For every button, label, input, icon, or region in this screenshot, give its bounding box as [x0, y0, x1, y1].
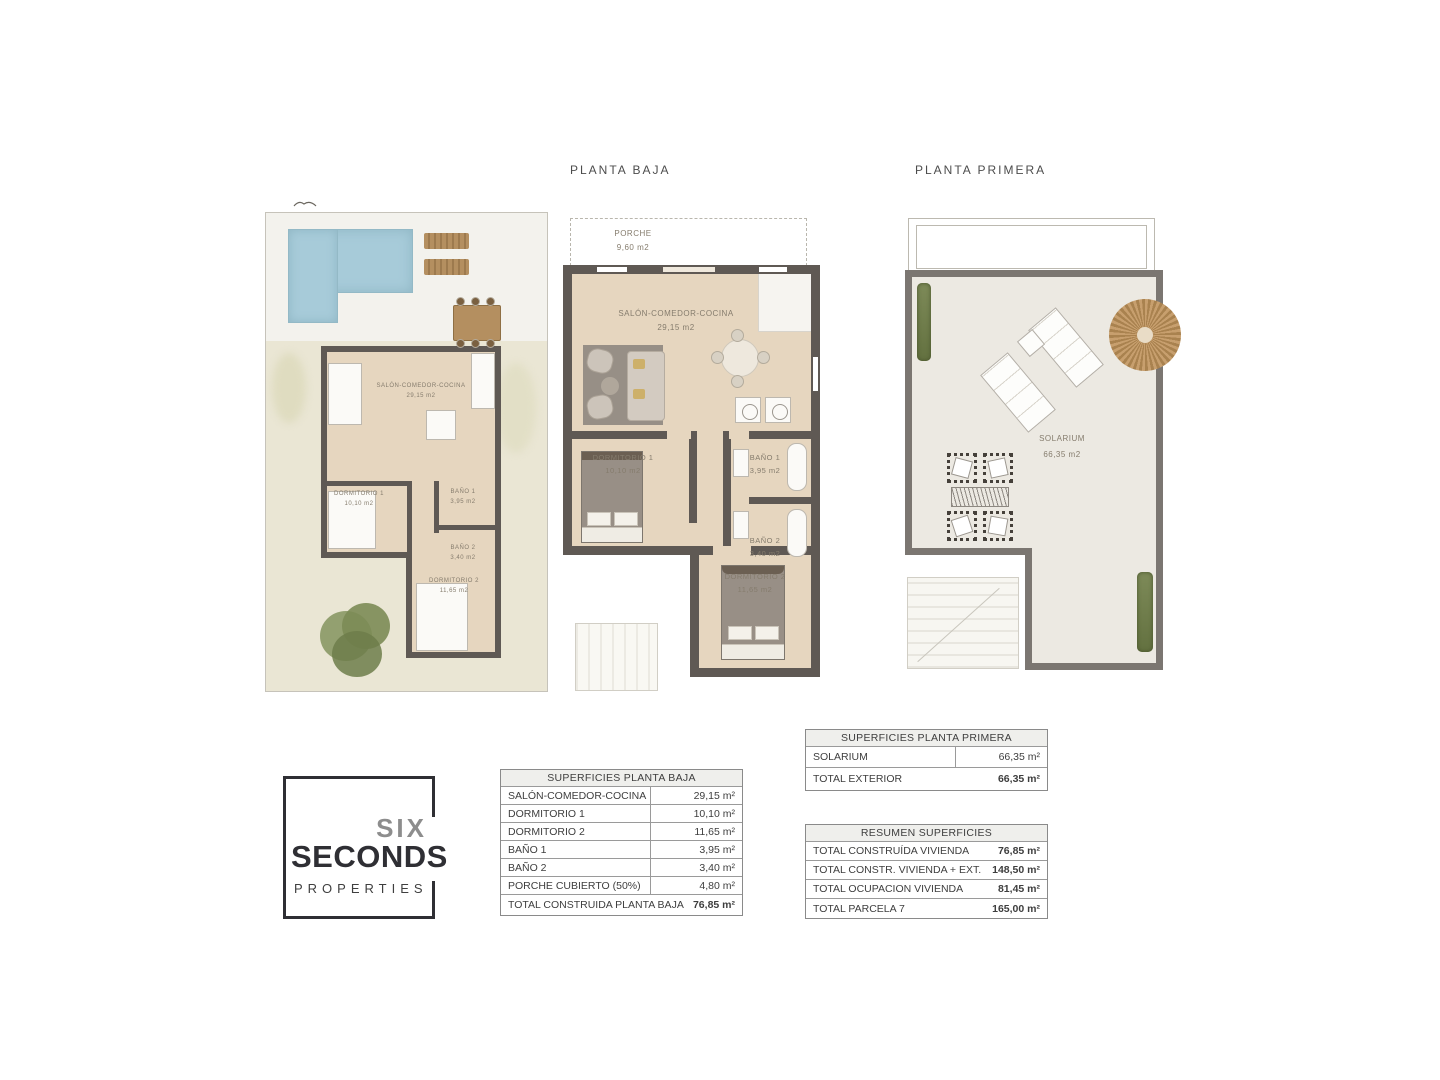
room-name: DORMITORIO 1	[319, 489, 399, 499]
table-superficies-planta-primera: SUPERFICIES PLANTA PRIMERA SOLARIUM66,35…	[805, 729, 1048, 791]
row-value: 29,15 m²	[694, 790, 735, 802]
room-label-porche: PORCHE 9,60 m2	[588, 227, 678, 254]
parasol	[1109, 299, 1181, 371]
room-area: 11,65 m2	[715, 584, 795, 597]
row-value: 3,95 m²	[699, 844, 735, 856]
room-name: DORMITORIO 2	[715, 571, 795, 584]
table-row: TOTAL PARCELA 7165,00 m²	[806, 899, 1047, 918]
table-row: TOTAL CONSTRUÍDA VIVIENDA76,85 m²	[806, 842, 1047, 861]
room-label-bano2: BAÑO 2 3,40 m2	[725, 535, 805, 561]
ground-floor-title: PLANTA BAJA	[570, 163, 670, 177]
room-area: 29,15 m2	[615, 321, 737, 335]
tree	[314, 601, 396, 681]
room-label-dorm2: DORMITORIO 2 11,65 m2	[715, 571, 795, 597]
sofa-cushion	[633, 359, 645, 369]
sun-lounger	[424, 233, 469, 249]
site-room-label-bano2: BAÑO 2 3,40 m2	[428, 543, 498, 563]
planter-hedge-right	[1137, 572, 1153, 652]
stove-hob	[785, 285, 801, 301]
row-value: 3,40 m²	[699, 862, 735, 874]
solarium-chair	[983, 511, 1013, 541]
logo-word-seconds: SECONDS	[291, 839, 448, 875]
outdoor-dining-table	[453, 305, 501, 341]
room-label-salon: SALÓN-COMEDOR-COCINA 29,15 m2	[615, 307, 737, 334]
table-header: SUPERFICIES PLANTA BAJA	[501, 770, 742, 787]
table-total-row: TOTAL EXTERIOR66,35 m²	[806, 768, 1047, 790]
room-name: BAÑO 2	[725, 535, 805, 548]
appliance	[735, 397, 761, 423]
room-name: SOLARIUM	[1012, 431, 1112, 447]
row-value: 11,65 m²	[694, 826, 735, 838]
room-area: 66,35 m2	[1012, 447, 1112, 463]
room-name: PORCHE	[588, 227, 678, 241]
row-label: TOTAL CONSTRUÍDA VIVIENDA	[813, 845, 969, 857]
first-floor-stairs	[907, 577, 1019, 669]
row-label: TOTAL EXTERIOR	[813, 773, 902, 785]
floor-plan-sheet: PLANTA BAJA PLANTA PRIMERA	[0, 0, 1440, 1080]
row-label: DORMITORIO 1	[508, 808, 585, 820]
table-total-row: TOTAL CONSTRUIDA PLANTA BAJA76,85 m²	[501, 895, 742, 915]
table-row: SALÓN-COMEDOR-COCINA29,15 m²	[501, 787, 742, 805]
exterior-stairs	[575, 623, 658, 691]
table-row: DORMITORIO 211,65 m²	[501, 823, 742, 841]
room-area: 11,65 m2	[414, 586, 494, 596]
table-superficies-planta-baja: SUPERFICIES PLANTA BAJA SALÓN-COMEDOR-CO…	[500, 769, 743, 916]
table-row: TOTAL OCUPACION VIVIENDA81,45 m²	[806, 880, 1047, 899]
room-name: BAÑO 2	[428, 543, 498, 553]
table-row: PORCHE CUBIERTO (50%)4,80 m²	[501, 877, 742, 895]
roof-outline-inner	[916, 225, 1147, 269]
row-label: TOTAL CONSTR. VIVIENDA + EXT.	[813, 864, 981, 876]
table-header: RESUMEN SUPERFICIES	[806, 825, 1047, 842]
row-value: 148,50 m²	[992, 864, 1040, 876]
row-label: PORCHE CUBIERTO (50%)	[508, 880, 641, 892]
row-value: 76,85 m²	[998, 845, 1040, 857]
solarium-chair	[983, 453, 1013, 483]
dining-table	[721, 339, 759, 377]
row-label: BAÑO 1	[508, 844, 547, 856]
room-name: DORMITORIO 2	[414, 576, 494, 586]
solarium-chair	[947, 511, 977, 541]
row-label: SALÓN-COMEDOR-COCINA	[508, 790, 646, 802]
row-label: BAÑO 2	[508, 862, 547, 874]
six-seconds-logo: SIX SECONDS PROPERTIES	[283, 776, 435, 919]
table-row: BAÑO 13,95 m²	[501, 841, 742, 859]
room-area: 3,40 m2	[428, 553, 498, 563]
table-row: SOLARIUM66,35 m²	[806, 747, 1047, 768]
row-value: 165,00 m²	[992, 903, 1040, 915]
table-row: TOTAL CONSTR. VIVIENDA + EXT.148,50 m²	[806, 861, 1047, 880]
first-floor-plan: SOLARIUM 66,35 m2	[905, 215, 1170, 693]
room-label-solarium: SOLARIUM 66,35 m2	[1012, 431, 1112, 463]
sun-lounger	[424, 259, 469, 275]
table-row: DORMITORIO 110,10 m²	[501, 805, 742, 823]
row-value: 10,10 m²	[694, 808, 735, 820]
room-area: 3,95 m2	[725, 465, 805, 478]
site-room-label-dorm2: DORMITORIO 2 11,65 m2	[414, 576, 494, 596]
room-area: 3,40 m2	[725, 548, 805, 561]
row-value: 81,45 m²	[998, 883, 1040, 895]
room-name: SALÓN-COMEDOR-COCINA	[615, 307, 737, 321]
room-name: BAÑO 1	[725, 452, 805, 465]
site-room-label-bano1: BAÑO 1 3,95 m2	[428, 487, 498, 507]
room-label-dorm1: DORMITORIO 1 10,10 m2	[583, 452, 663, 478]
table-resumen-superficies: RESUMEN SUPERFICIES TOTAL CONSTRUÍDA VIV…	[805, 824, 1048, 919]
room-area: 3,95 m2	[428, 497, 498, 507]
room-label-bano1: BAÑO 1 3,95 m2	[725, 452, 805, 478]
room-name: DORMITORIO 1	[583, 452, 663, 465]
room-name: SALÓN-COMEDOR-COCINA	[371, 381, 471, 391]
table-row: BAÑO 23,40 m²	[501, 859, 742, 877]
row-label: TOTAL CONSTRUIDA PLANTA BAJA	[508, 899, 684, 911]
solarium-rug	[951, 487, 1009, 507]
coffee-table	[601, 377, 619, 395]
solarium-chair	[947, 453, 977, 483]
logo-word-properties: PROPERTIES	[294, 881, 428, 896]
garden-bush	[496, 363, 536, 453]
room-name: BAÑO 1	[428, 487, 498, 497]
room-area: 29,15 m2	[371, 391, 471, 401]
row-value: 66,35 m²	[999, 751, 1040, 763]
site-room-label-salon: SALÓN-COMEDOR-COCINA 29,15 m2	[371, 381, 471, 401]
ground-floor-plan: PORCHE 9,60 m2	[560, 215, 822, 693]
site-plan: SALÓN-COMEDOR-COCINA 29,15 m2 DORMITORIO…	[265, 212, 548, 692]
kitchen-counter	[758, 274, 811, 332]
first-floor-title: PLANTA PRIMERA	[915, 163, 1046, 177]
row-value: 4,80 m²	[699, 880, 735, 892]
room-area: 10,10 m2	[583, 465, 663, 478]
row-label: TOTAL PARCELA 7	[813, 903, 905, 915]
bird-mark	[293, 199, 317, 208]
sofa-cushion	[633, 389, 645, 399]
row-label: DORMITORIO 2	[508, 826, 585, 838]
planter-hedge-left	[917, 283, 931, 361]
room-area: 9,60 m2	[588, 241, 678, 255]
row-value: 76,85 m²	[693, 899, 735, 911]
garden-bush	[272, 353, 306, 423]
row-label: SOLARIUM	[813, 751, 868, 763]
site-room-label-dorm1: DORMITORIO 1 10,10 m2	[319, 489, 399, 509]
room-area: 10,10 m2	[319, 499, 399, 509]
row-label: TOTAL OCUPACION VIVIENDA	[813, 883, 963, 895]
table-header: SUPERFICIES PLANTA PRIMERA	[806, 730, 1047, 747]
pool-leg	[288, 229, 338, 323]
appliance	[765, 397, 791, 423]
row-value: 66,35 m²	[998, 773, 1040, 785]
